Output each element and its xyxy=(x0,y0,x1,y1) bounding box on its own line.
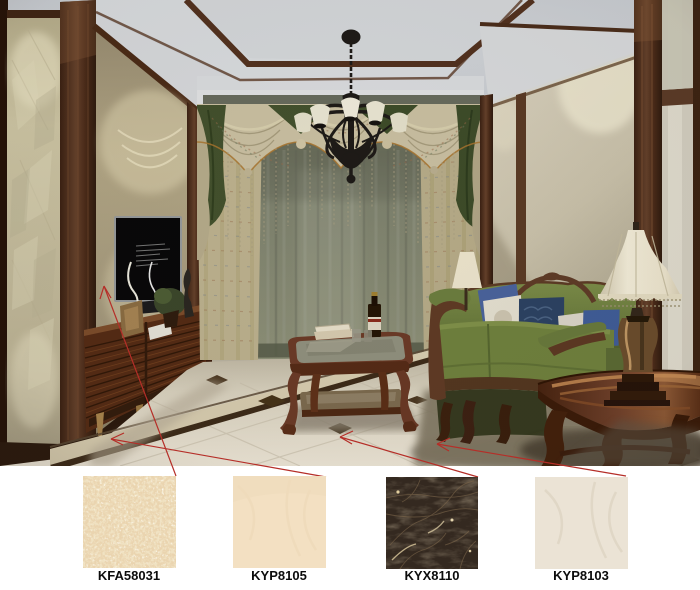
svg-text:KYP8105: KYP8105 xyxy=(251,568,307,583)
svg-text:KYP8103: KYP8103 xyxy=(553,568,609,583)
svg-text:KFA58031: KFA58031 xyxy=(98,568,160,583)
svg-text:KYX8110: KYX8110 xyxy=(405,568,460,583)
